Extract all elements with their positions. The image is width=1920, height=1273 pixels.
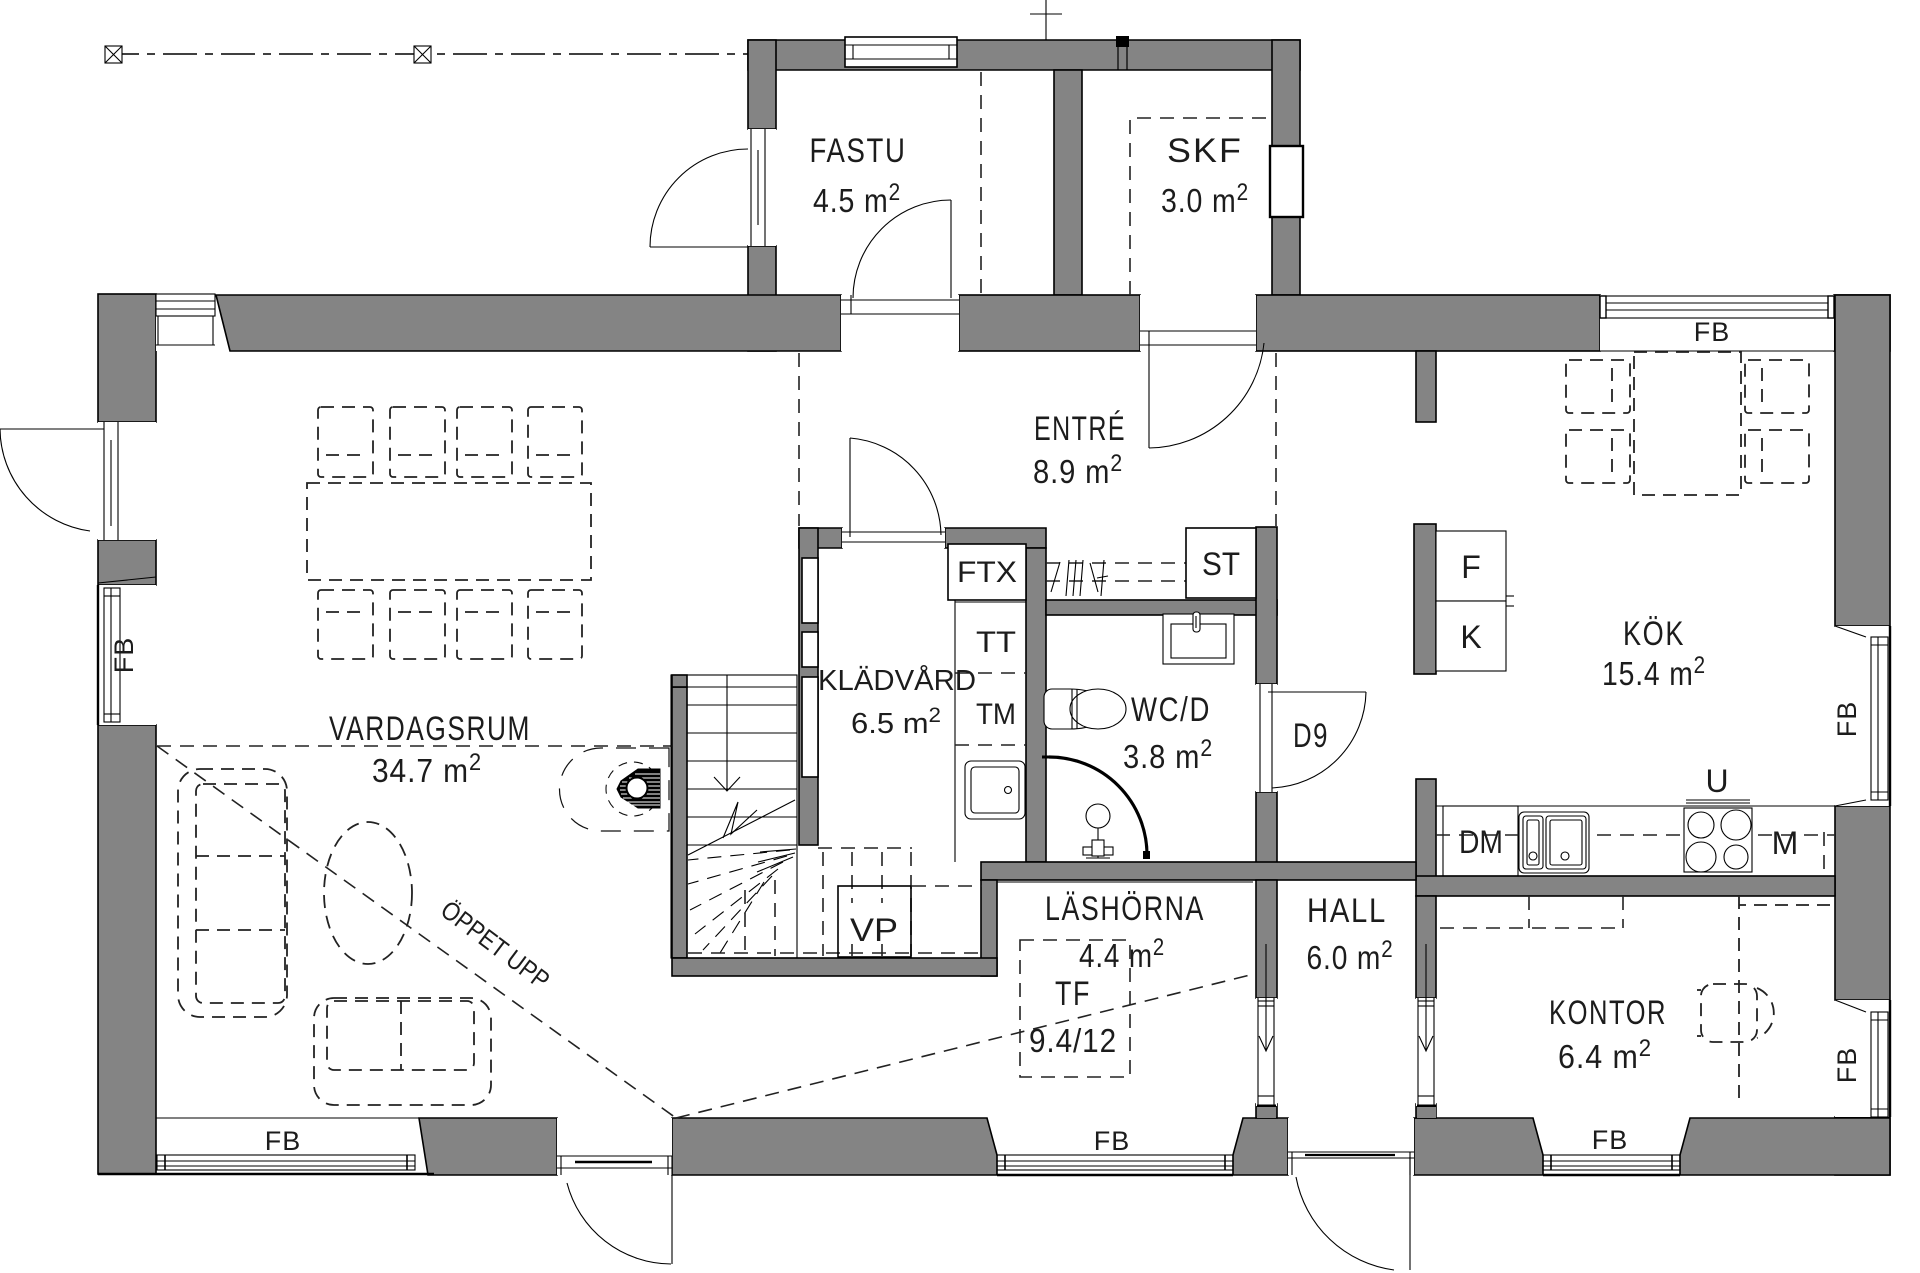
svg-text:WC/D: WC/D [1131,691,1211,729]
svg-text:FB: FB [1094,1126,1131,1156]
svg-text:F: F [1461,549,1481,585]
svg-text:FB: FB [265,1126,302,1156]
svg-text:FASTU: FASTU [810,132,907,170]
svg-text:TT: TT [976,626,1016,659]
svg-text:15.4 m2: 15.4 m2 [1602,652,1706,692]
svg-text:LÄSHÖRNA: LÄSHÖRNA [1045,890,1205,928]
svg-text:U: U [1705,763,1728,799]
svg-text:K: K [1460,619,1481,655]
svg-text:FB: FB [1832,1047,1862,1084]
svg-text:KÖK: KÖK [1623,615,1685,653]
svg-text:4.4 m2: 4.4 m2 [1079,934,1165,974]
svg-text:TF: TF [1055,975,1091,1013]
svg-text:9.4/12: 9.4/12 [1029,1022,1117,1059]
svg-text:FB: FB [109,637,139,674]
svg-text:6.5 m2: 6.5 m2 [851,704,941,740]
svg-text:6.4 m2: 6.4 m2 [1558,1035,1652,1075]
svg-text:ENTRÉ: ENTRÉ [1034,410,1126,448]
svg-text:M: M [1772,825,1799,861]
svg-text:TM: TM [976,698,1016,731]
svg-text:KONTOR: KONTOR [1549,994,1667,1032]
svg-text:KLÄDVÅRD: KLÄDVÅRD [818,664,976,697]
svg-text:DM: DM [1459,824,1503,860]
svg-text:4.5 m2: 4.5 m2 [813,179,901,219]
svg-text:34.7 m2: 34.7 m2 [372,749,482,789]
svg-text:HALL: HALL [1307,892,1387,930]
svg-text:3.8 m2: 3.8 m2 [1123,735,1213,775]
svg-text:6.0 m2: 6.0 m2 [1307,936,1394,976]
svg-text:FB: FB [1694,317,1731,347]
svg-text:FB: FB [1592,1125,1629,1155]
svg-text:VP: VP [850,912,898,948]
svg-text:3.0 m2: 3.0 m2 [1161,179,1249,219]
svg-text:FB: FB [1832,701,1862,738]
svg-text:FTX: FTX [957,556,1017,589]
svg-text:8.9 m2: 8.9 m2 [1033,450,1123,490]
svg-text:D9: D9 [1293,717,1329,755]
svg-text:ST: ST [1202,546,1240,582]
svg-text:SKF: SKF [1167,132,1243,170]
svg-text:VARDAGSRUM: VARDAGSRUM [329,710,531,748]
